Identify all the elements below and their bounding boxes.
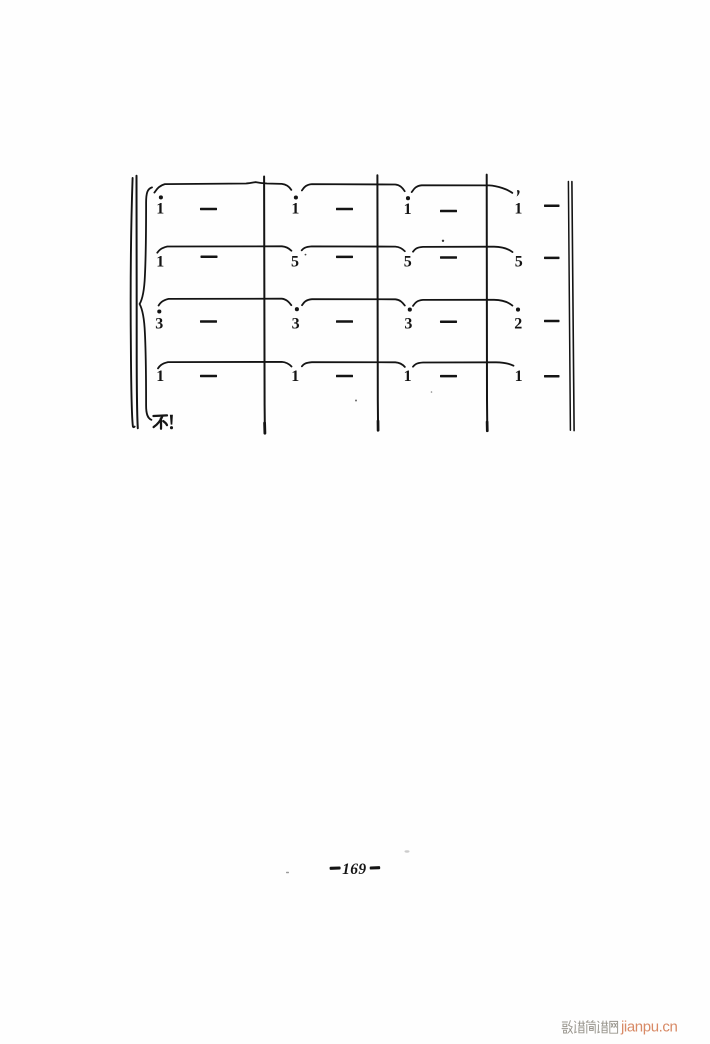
svg-text:2: 2 [514, 316, 522, 333]
svg-text:5: 5 [291, 254, 299, 271]
svg-text:1: 1 [156, 253, 164, 270]
svg-text:1: 1 [404, 201, 412, 218]
svg-text:5: 5 [404, 254, 412, 271]
svg-text:1: 1 [156, 200, 164, 217]
svg-text:1: 1 [291, 200, 299, 217]
svg-text:3: 3 [155, 316, 163, 333]
svg-text:1: 1 [404, 368, 412, 385]
svg-text:jianpu.cn: jianpu.cn [620, 1019, 678, 1036]
svg-text:3: 3 [292, 316, 300, 333]
svg-text:169: 169 [342, 861, 366, 878]
svg-text:1: 1 [156, 368, 164, 385]
svg-text:5: 5 [515, 254, 523, 271]
svg-text:1: 1 [291, 368, 299, 385]
svg-text:1: 1 [515, 368, 523, 385]
svg-text:3: 3 [404, 316, 412, 333]
svg-text:1: 1 [514, 201, 522, 218]
